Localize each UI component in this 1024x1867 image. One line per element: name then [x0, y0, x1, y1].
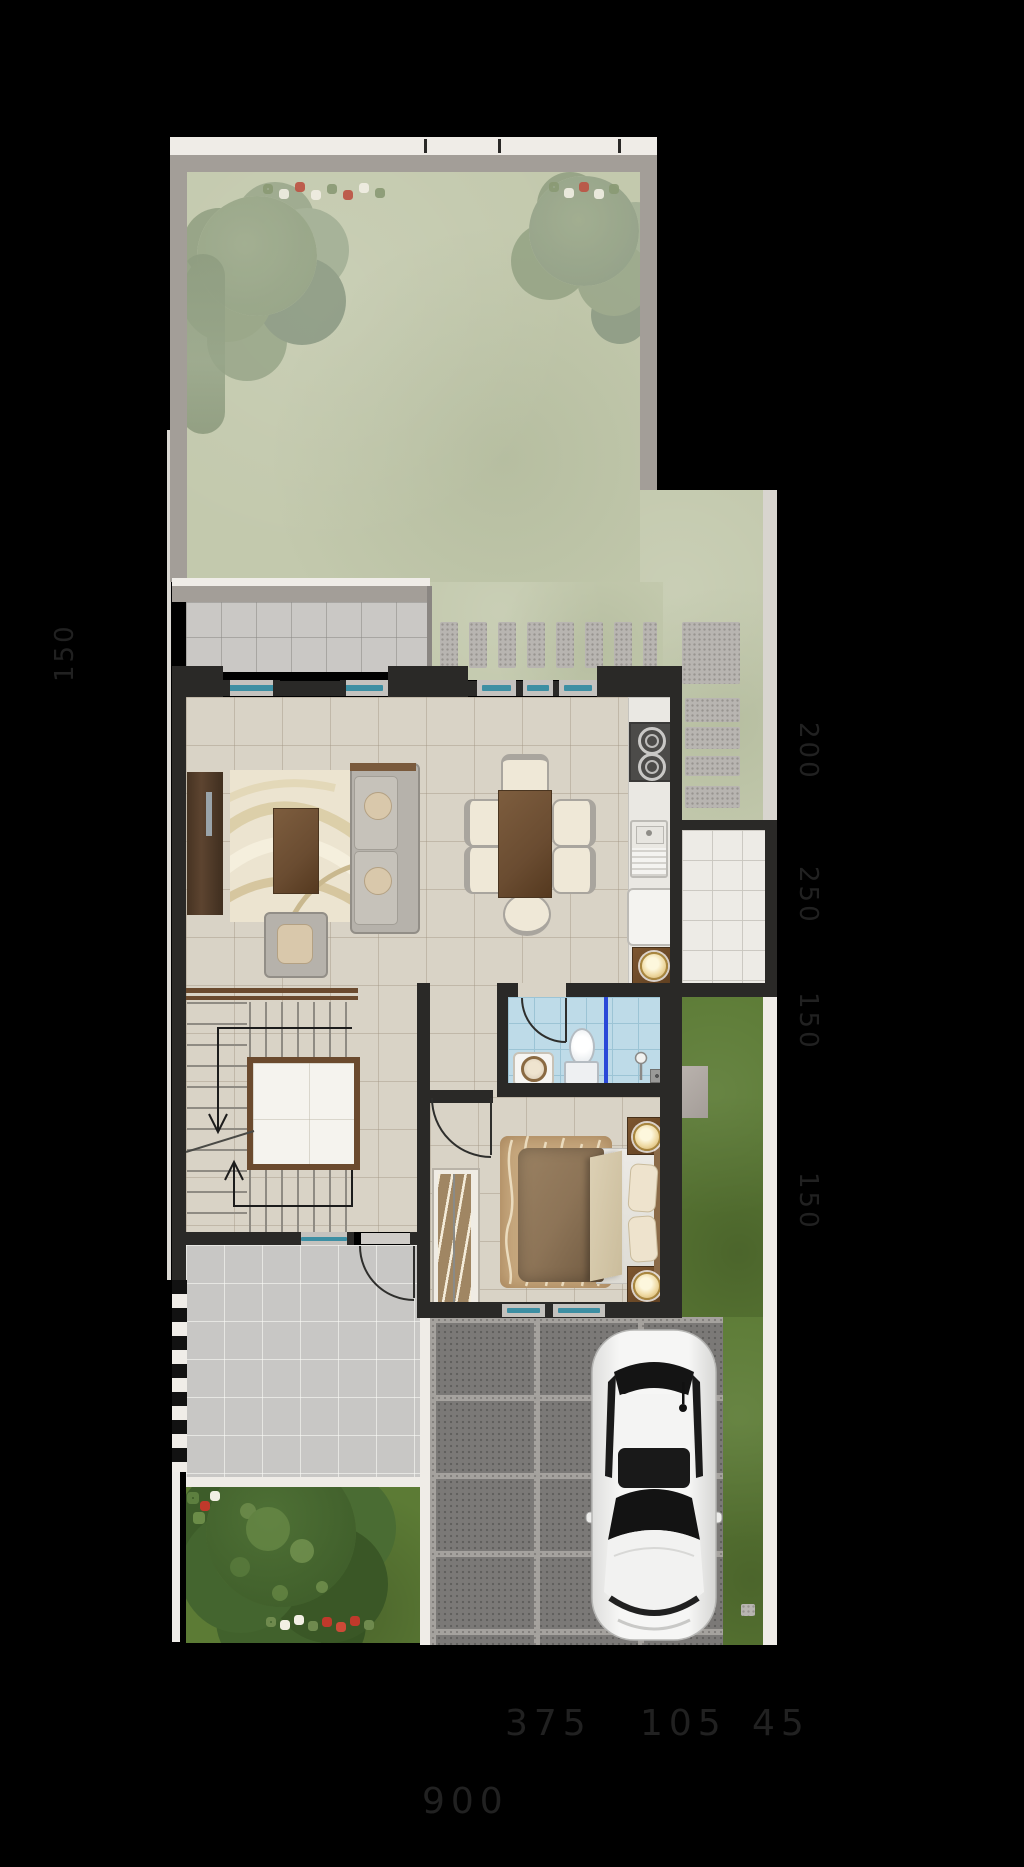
car	[584, 1326, 723, 1644]
dining-chair	[552, 846, 596, 894]
boundary-tick	[424, 139, 427, 153]
garage-driveway	[430, 1317, 723, 1645]
wall-bath-left	[497, 997, 508, 1083]
window-glass	[527, 685, 549, 691]
boundary-tick	[498, 139, 501, 153]
dining-chair	[503, 893, 551, 936]
dimension-label: 150	[795, 992, 821, 1072]
wardrobe-hangers	[438, 1174, 471, 1302]
garden-wall-left	[170, 172, 187, 582]
dimension-label: 45	[752, 1706, 810, 1742]
entry-porch	[186, 1245, 420, 1477]
front-yard	[186, 1487, 420, 1643]
cooktop-burner	[638, 727, 666, 755]
wall-bath-bottom	[497, 1083, 680, 1097]
terrace-wall-cap	[172, 578, 430, 586]
dimension-label: 375	[505, 1706, 592, 1742]
dimension-label: 200	[795, 722, 821, 802]
stair-rail	[186, 996, 358, 1000]
terrace-wall	[172, 586, 430, 602]
window-glass	[564, 685, 592, 691]
wall	[670, 820, 682, 983]
utility-court	[682, 830, 765, 983]
front-tree	[206, 1487, 356, 1607]
stair-void	[247, 1057, 360, 1170]
stepping-stone	[643, 622, 657, 668]
dimension-label: 150	[795, 1172, 821, 1252]
window-glass	[345, 685, 383, 691]
stepping-stone	[614, 622, 632, 668]
wall	[388, 666, 468, 697]
flower-bed	[192, 1497, 194, 1499]
side-lawn	[723, 1317, 763, 1645]
window-frame	[223, 680, 230, 696]
rear-boundary-white-strip	[170, 137, 657, 155]
garden-wall-top	[170, 155, 657, 172]
flower-bed	[267, 188, 269, 190]
tv-cabinet	[187, 772, 223, 915]
stepping-stone	[685, 786, 740, 808]
stepping-stone	[685, 727, 740, 749]
wall-right-kitchen	[670, 666, 682, 820]
bed-blanket	[590, 1151, 622, 1282]
stepping-stone-large	[682, 622, 740, 684]
refrigerator	[627, 888, 676, 946]
terrace	[186, 602, 430, 672]
wall-utility-right	[765, 820, 777, 995]
console-lamp	[640, 952, 668, 980]
window-frame	[273, 680, 280, 696]
window-glass	[229, 685, 274, 691]
stair-rail	[186, 988, 358, 993]
sofa-trim	[350, 763, 416, 771]
stair-flight-left	[187, 1002, 247, 1242]
stair-flight-upper	[249, 1002, 358, 1057]
window-frame	[347, 1232, 354, 1245]
curb-stone	[741, 1604, 755, 1616]
wall	[468, 681, 477, 696]
bed-pillow	[627, 1215, 658, 1263]
window-glass	[558, 1308, 600, 1313]
front-fence	[172, 1280, 187, 1472]
wall-bedroom-left	[417, 983, 430, 1317]
front-tree-highlights	[246, 1507, 290, 1551]
garden-wall-right	[640, 172, 657, 490]
dimension-label: 150	[52, 592, 78, 682]
dimension-label: 250	[795, 866, 821, 946]
side-walkway	[763, 995, 777, 1645]
floor-plan: 150 200 250 150 150 375 105 45 900	[0, 0, 1024, 1867]
toilet-tank	[564, 1061, 599, 1085]
flower-bed	[270, 1621, 272, 1623]
shower-partition	[604, 997, 608, 1083]
dimension-label: 105	[640, 1706, 727, 1742]
wall	[280, 681, 340, 696]
tv	[206, 792, 212, 836]
ac-unit-pad	[678, 1066, 708, 1118]
window-glass	[482, 685, 511, 691]
wall-left	[172, 666, 186, 1245]
cooktop-burner	[638, 753, 666, 781]
wall-front	[186, 1232, 295, 1245]
window-glass	[507, 1308, 540, 1313]
window-frame	[545, 1304, 553, 1317]
backyard-garden	[187, 172, 640, 582]
stepping-stone	[440, 622, 458, 668]
porch-border	[186, 1477, 420, 1487]
stepping-stone	[527, 622, 545, 668]
window-frame	[553, 681, 559, 696]
sofa-pillow	[364, 867, 392, 895]
dining-chair	[552, 799, 596, 847]
coffee-table	[273, 808, 319, 894]
wall	[172, 1245, 186, 1285]
armchair-cushion	[277, 924, 313, 964]
stepping-stone	[498, 622, 516, 668]
front-door-threshold	[361, 1233, 410, 1244]
stepping-stone	[685, 698, 740, 722]
bath-door-opening	[518, 983, 566, 997]
dimension-label: 900	[422, 1784, 509, 1820]
boundary-line	[172, 1472, 180, 1642]
flower-bed	[553, 186, 555, 188]
window-frame	[516, 681, 523, 696]
nightstand-lamp	[633, 1272, 661, 1300]
side-walkway	[763, 490, 777, 820]
stepping-stone	[556, 622, 574, 668]
stepping-stone	[469, 622, 487, 668]
nightstand-lamp	[633, 1123, 661, 1151]
stepping-stone	[585, 622, 603, 668]
sink-faucet	[646, 830, 652, 836]
garden-bush	[187, 254, 225, 434]
washbasin-bowl	[521, 1056, 547, 1082]
garden-tree	[529, 176, 639, 286]
wall-right	[660, 983, 682, 1317]
stepping-stone	[685, 756, 740, 776]
bed-pillow	[627, 1163, 658, 1213]
wall-utility-top	[682, 820, 777, 830]
wall-bedroom-top	[430, 1090, 493, 1103]
boundary-tick	[618, 139, 621, 153]
entry-window-glass	[301, 1237, 347, 1241]
window-frame	[295, 1232, 301, 1245]
window-frame	[340, 680, 346, 696]
dining-table	[498, 790, 552, 898]
sofa-pillow	[364, 792, 392, 820]
side-lawn	[682, 995, 763, 1317]
